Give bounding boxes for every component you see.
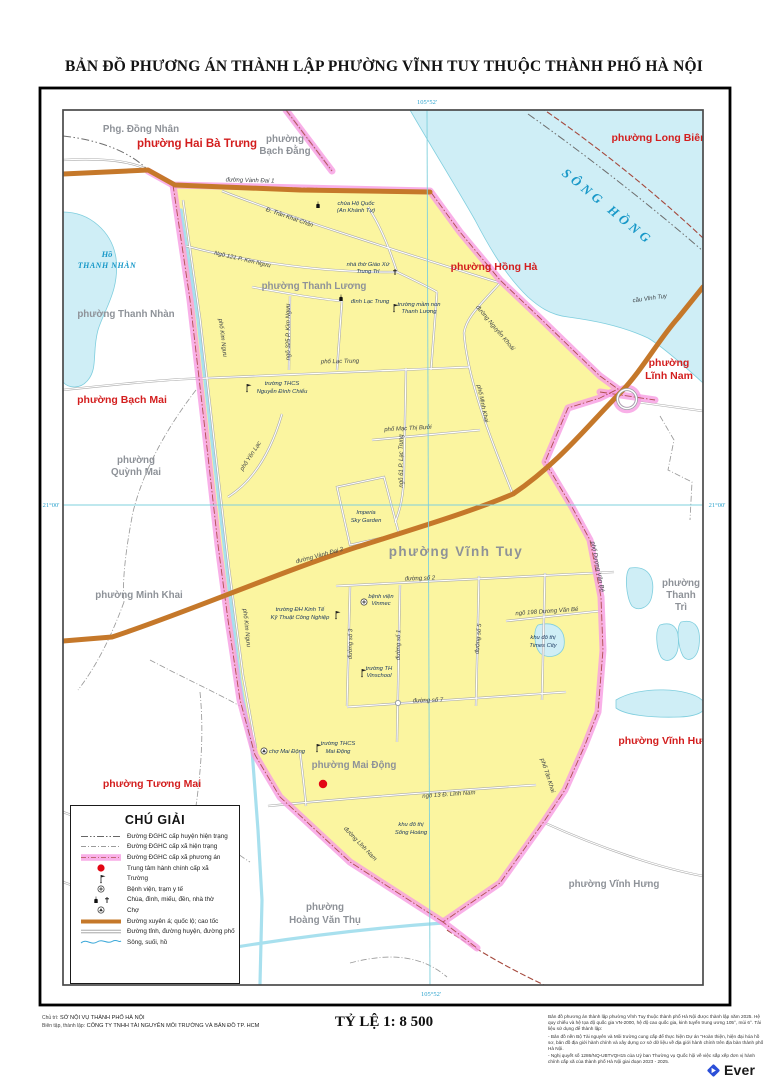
ward-label-bach-dang: phường [266, 134, 304, 145]
map-notes: Bản đồ phương án thành lập phường Vĩnh T… [548, 1014, 764, 1067]
street-line-icon [75, 927, 127, 936]
legend-title: CHÚ GIẢI [71, 813, 239, 827]
ward-label-thanh-nhan: phường Thanh Nhàn [77, 309, 174, 320]
poi-label: Thanh Lương [402, 309, 438, 315]
river-squiggle-icon [75, 937, 127, 948]
street-label: đường số 1 [395, 630, 403, 661]
ward-label-minh-khai: phường Minh Khai [95, 590, 183, 601]
poi-label: Vinmec [371, 601, 390, 607]
boundary-district-line-icon [75, 832, 127, 841]
legend-row: Đường xuyên á; quốc lộ; cao tốc [71, 916, 239, 927]
brand-logo: Ever [706, 1062, 755, 1078]
lake-label: Hồ [101, 249, 113, 259]
legend-row: Trường [71, 873, 239, 884]
coord-label-right: 21°00' [709, 502, 726, 509]
ward-label-linh-nam: Lĩnh Nam [645, 370, 693, 382]
legend-row: Chợ [71, 905, 239, 916]
note-paragraph: - Bản đồ nền Bộ Tài nguyên và Môi trường… [548, 1034, 764, 1053]
mini-roundabout [395, 700, 400, 705]
pagoda-church-icons [75, 894, 127, 905]
legend-row: Đường ĐGHC cấp huyện hiện trạng [71, 831, 239, 842]
hospital-icon [361, 599, 367, 605]
ward-label-long-bien: phường Long Biên [612, 132, 707, 144]
highway-line-icon [75, 917, 127, 926]
coord-label-top: 105°52' [417, 99, 437, 106]
street-label: ngõ 325 P. Kim Ngưu [286, 303, 292, 360]
poi-label: (An Khánh Tự) [337, 208, 375, 214]
legend-row: Sông, suối, hồ [71, 937, 239, 948]
poi-label: Imperia [356, 510, 376, 516]
poi-label: Nguyễn Đình Chiểu [257, 388, 308, 395]
street-label: phố Lạc Trung [320, 358, 360, 366]
poi-label: trường THCS [321, 741, 356, 747]
ward-label-thanh-luong: phường Thanh Lương [262, 281, 367, 292]
market-icon [75, 905, 127, 915]
poi-label: bệnh viện [368, 594, 393, 600]
map-page: BẢN ĐỒ PHƯƠNG ÁN THÀNH LẬP PHƯỜNG VĨNH T… [0, 0, 768, 1086]
street-label: đường Vành Đai 1 [226, 177, 275, 184]
ward-label-linh-nam: phường [649, 357, 690, 369]
ward-label-hong-ha: phường Hồng Hà [451, 261, 538, 273]
brand-name: Ever [724, 1062, 755, 1078]
ward-label-bach-dang: Bạch Đằng [259, 145, 310, 157]
lake-label: THANH NHÀN [78, 260, 137, 270]
ward-label-dong-nhan: Phg. Đồng Nhân [103, 124, 179, 135]
boundary-proposed-band-icon [75, 853, 127, 862]
ward-label-mai-dong: phường Mai Động [312, 760, 397, 771]
poi-label: chợ Mai Động [269, 749, 306, 755]
poi-label: trường TH [366, 666, 393, 672]
legend-row: Chùa, đình, miếu, đền, nhà thờ [71, 895, 239, 906]
ward-label-quynh-mai: Quỳnh Mai [111, 467, 161, 478]
note-paragraph: Bản đồ phương án thành lập phường Vĩnh T… [548, 1014, 764, 1033]
ward-label-hoang-van-thu: Hoàng Văn Thụ [289, 915, 361, 926]
legend-row: Bệnh viện, trạm y tế [71, 884, 239, 895]
legend-row: Đường tỉnh, đường huyện, đường phố [71, 926, 239, 937]
ward-label-thanh-tri: Thanh [666, 590, 695, 601]
poi-label: khu đô thị [398, 822, 424, 828]
ward-label-tuong-mai: phường Tương Mai [103, 778, 201, 790]
poi-label: khu đô thị [530, 635, 556, 641]
ward-label-hai-ba-trung: phường Hai Bà Trưng [137, 138, 257, 150]
street-label: đường số 7 [413, 696, 444, 704]
street-label: đường số 2 [405, 574, 436, 582]
poi-label: nhà thờ Giáo Xứ [347, 262, 391, 268]
market-icon [261, 748, 267, 754]
coord-label-bottom: 105°52' [421, 991, 441, 998]
poi-label: trường mầm non [398, 302, 441, 308]
ward-label-vinh-hung-red: phường Vĩnh Hưng [618, 735, 715, 747]
legend-row: Trung tâm hành chính cấp xã [71, 863, 239, 874]
street-label: ngõ 61 P. Lạc Trung [399, 434, 405, 488]
poi-label: Vinschool [366, 673, 392, 679]
legend-row: Đường ĐGHC cấp xã phương án [71, 852, 239, 863]
ward-label-bach-mai: phường Bạch Mai [77, 394, 167, 406]
poi-label: Kỹ Thuật Công Nghiệp [271, 615, 330, 621]
ward-label-quynh-mai: phường [117, 455, 155, 466]
poi-label: Sky Garden [351, 518, 382, 524]
ward-label-thanh-tri: Trì [675, 602, 687, 613]
legend-row: Đường ĐGHC cấp xã hiện trạng [71, 842, 239, 853]
poi-label: trường ĐH Kinh Tế [276, 606, 326, 613]
poi-label: trường THCS [265, 381, 300, 387]
boundary-commune-line-icon [75, 842, 127, 851]
poi-label: Times City [529, 643, 557, 649]
school-flag-icon [75, 873, 127, 884]
hospital-icon [75, 884, 127, 894]
coord-label-left: 21°00' [43, 502, 60, 509]
admin-center-dot [319, 780, 327, 788]
poi-label: đình Lạc Trung [351, 299, 390, 305]
ever-diamond-icon [706, 1063, 721, 1078]
ward-label-vinh-tuy: phường Vĩnh Tuy [389, 544, 524, 559]
ward-label-thanh-tri: phường [662, 578, 700, 589]
poi-label: Sống Hoàng [395, 829, 428, 836]
poi-label: chùa Hộ Quốc [337, 200, 374, 207]
legend-box: CHÚ GIẢI Đường ĐGHC cấp huyện hiện trạng… [70, 805, 240, 984]
poi-label: Mai Động [326, 749, 352, 755]
poi-label: Trung Trí [357, 269, 381, 275]
admin-center-dot-icon [75, 863, 127, 873]
street-label: đường số 3 [347, 628, 355, 659]
ward-label-hoang-van-thu: phường [306, 902, 344, 913]
ward-label-vinh-hung-gray: phường Vĩnh Hưng [569, 879, 660, 890]
